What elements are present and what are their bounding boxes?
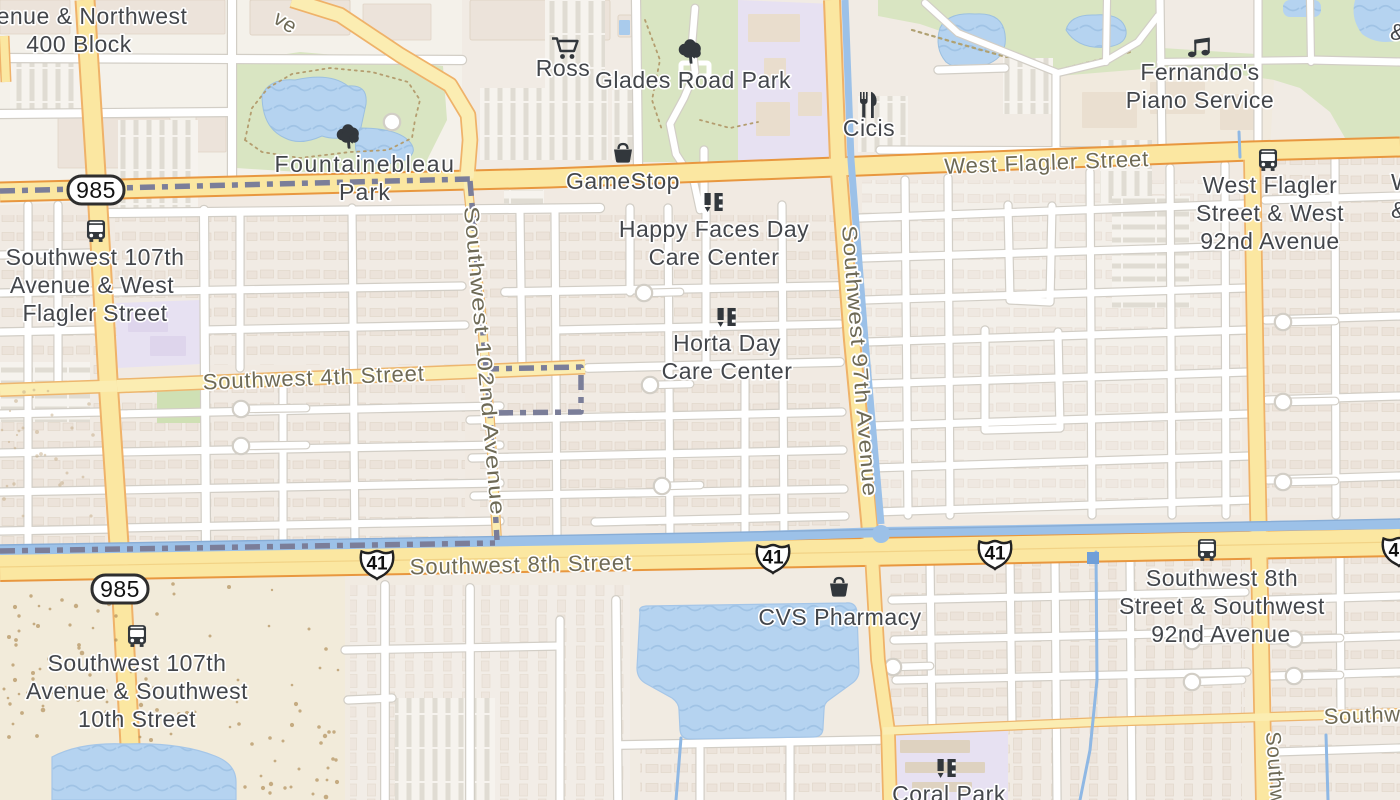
svg-text:CVS Pharmacy: CVS Pharmacy <box>758 604 921 630</box>
svg-text:41: 41 <box>1388 541 1400 562</box>
svg-text:Southwest 10th: Southwest 10th <box>1323 698 1400 729</box>
svg-text:Fernando's: Fernando's <box>1140 59 1259 85</box>
svg-text:41: 41 <box>984 544 1006 565</box>
svg-text:41: 41 <box>366 554 388 575</box>
svg-text:Street & Southwest: Street & Southwest <box>1119 593 1325 619</box>
svg-text:GameStop: GameStop <box>566 168 680 194</box>
svg-text:Glades Road Park: Glades Road Park <box>595 67 791 93</box>
svg-text:Southwest 8th Street: Southwest 8th Street <box>409 550 632 580</box>
svg-text:Piano Service: Piano Service <box>1126 87 1274 113</box>
svg-text:West Flagler: West Flagler <box>1203 172 1338 198</box>
svg-text:400 Block: 400 Block <box>26 31 132 57</box>
svg-text:venue & Northwest: venue & Northwest <box>0 3 188 29</box>
svg-text:92nd Avenue: 92nd Avenue <box>1151 621 1290 647</box>
svg-text:Avenue & Southwest: Avenue & Southwest <box>26 678 248 704</box>
svg-text:Fountainebleau: Fountainebleau <box>275 151 456 177</box>
svg-text:Care Center: Care Center <box>649 244 780 270</box>
svg-text:Happy Faces Day: Happy Faces Day <box>619 216 809 242</box>
svg-text:Southwest 107th: Southwest 107th <box>6 244 185 270</box>
svg-text:Avenue & West: Avenue & West <box>10 272 174 298</box>
svg-text:W: W <box>1391 169 1400 195</box>
svg-text:10th Street: 10th Street <box>78 706 196 732</box>
svg-text:Street & West: Street & West <box>1196 200 1344 226</box>
svg-text:&: & <box>1391 197 1400 223</box>
svg-text:Horta Day: Horta Day <box>673 330 781 356</box>
svg-text:985: 985 <box>100 576 140 602</box>
svg-text:985: 985 <box>76 177 116 203</box>
svg-text:Cicis: Cicis <box>843 115 895 141</box>
svg-text:Ross: Ross <box>536 55 590 81</box>
svg-text:Care Center: Care Center <box>662 358 793 384</box>
svg-text:Park: Park <box>339 179 391 205</box>
svg-text:41: 41 <box>762 548 784 569</box>
svg-text:Flagler Street: Flagler Street <box>22 300 167 326</box>
svg-text:92nd Avenue: 92nd Avenue <box>1200 228 1339 254</box>
svg-text:Southwest 8th: Southwest 8th <box>1146 565 1298 591</box>
svg-text:Coral Park: Coral Park <box>892 781 1006 800</box>
svg-text:Southwest 107th: Southwest 107th <box>48 650 227 676</box>
svg-text:&: & <box>1390 19 1400 45</box>
